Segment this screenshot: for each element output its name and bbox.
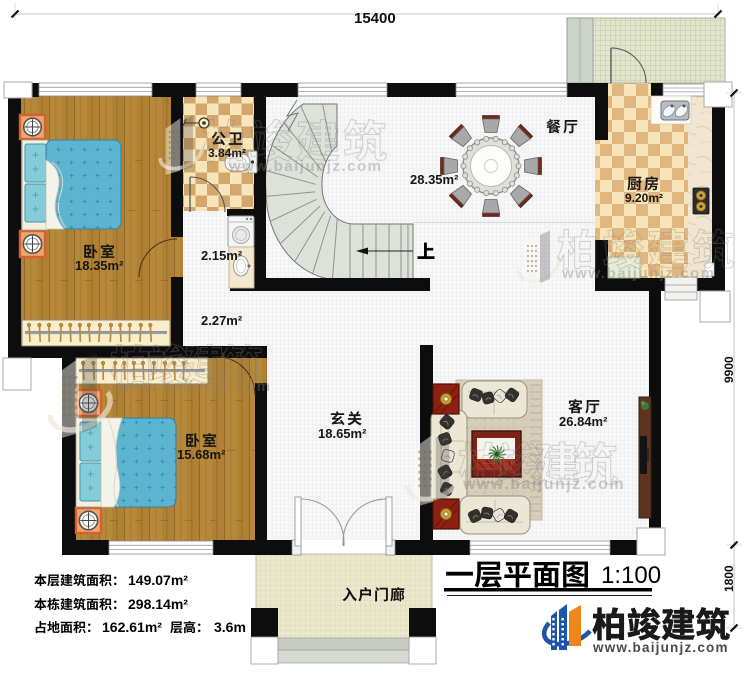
svg-text:www.baijunjz.com: www.baijunjz.com — [228, 158, 382, 175]
svg-text:162.61m²: 162.61m² — [102, 619, 162, 635]
svg-text:18.65m²: 18.65m² — [318, 426, 367, 441]
svg-text:www.baijunjz.com: www.baijunjz.com — [462, 476, 625, 493]
svg-text:www.baijunjz.com: www.baijunjz.com — [561, 265, 715, 282]
svg-text:3.6m: 3.6m — [214, 619, 246, 635]
svg-text:2.27m²: 2.27m² — [201, 313, 243, 328]
svg-text:1800: 1800 — [722, 565, 736, 592]
svg-text:15.68m²: 15.68m² — [177, 447, 226, 462]
svg-text:www.baijunjz.com: www.baijunjz.com — [117, 378, 271, 395]
svg-text:9900: 9900 — [722, 356, 736, 383]
svg-text:15400: 15400 — [354, 10, 396, 27]
svg-text:www.baijunjz.com: www.baijunjz.com — [592, 640, 729, 655]
svg-text:26.84m²: 26.84m² — [559, 414, 608, 429]
svg-text:9.20m²: 9.20m² — [625, 191, 663, 205]
svg-text:2.15m²: 2.15m² — [201, 248, 243, 263]
svg-text:298.14m²: 298.14m² — [128, 596, 188, 612]
svg-text:18.35m²: 18.35m² — [75, 258, 124, 273]
svg-text:149.07m²: 149.07m² — [128, 572, 188, 588]
svg-text:28.35m²: 28.35m² — [410, 172, 459, 187]
svg-text:1:100: 1:100 — [601, 562, 661, 589]
